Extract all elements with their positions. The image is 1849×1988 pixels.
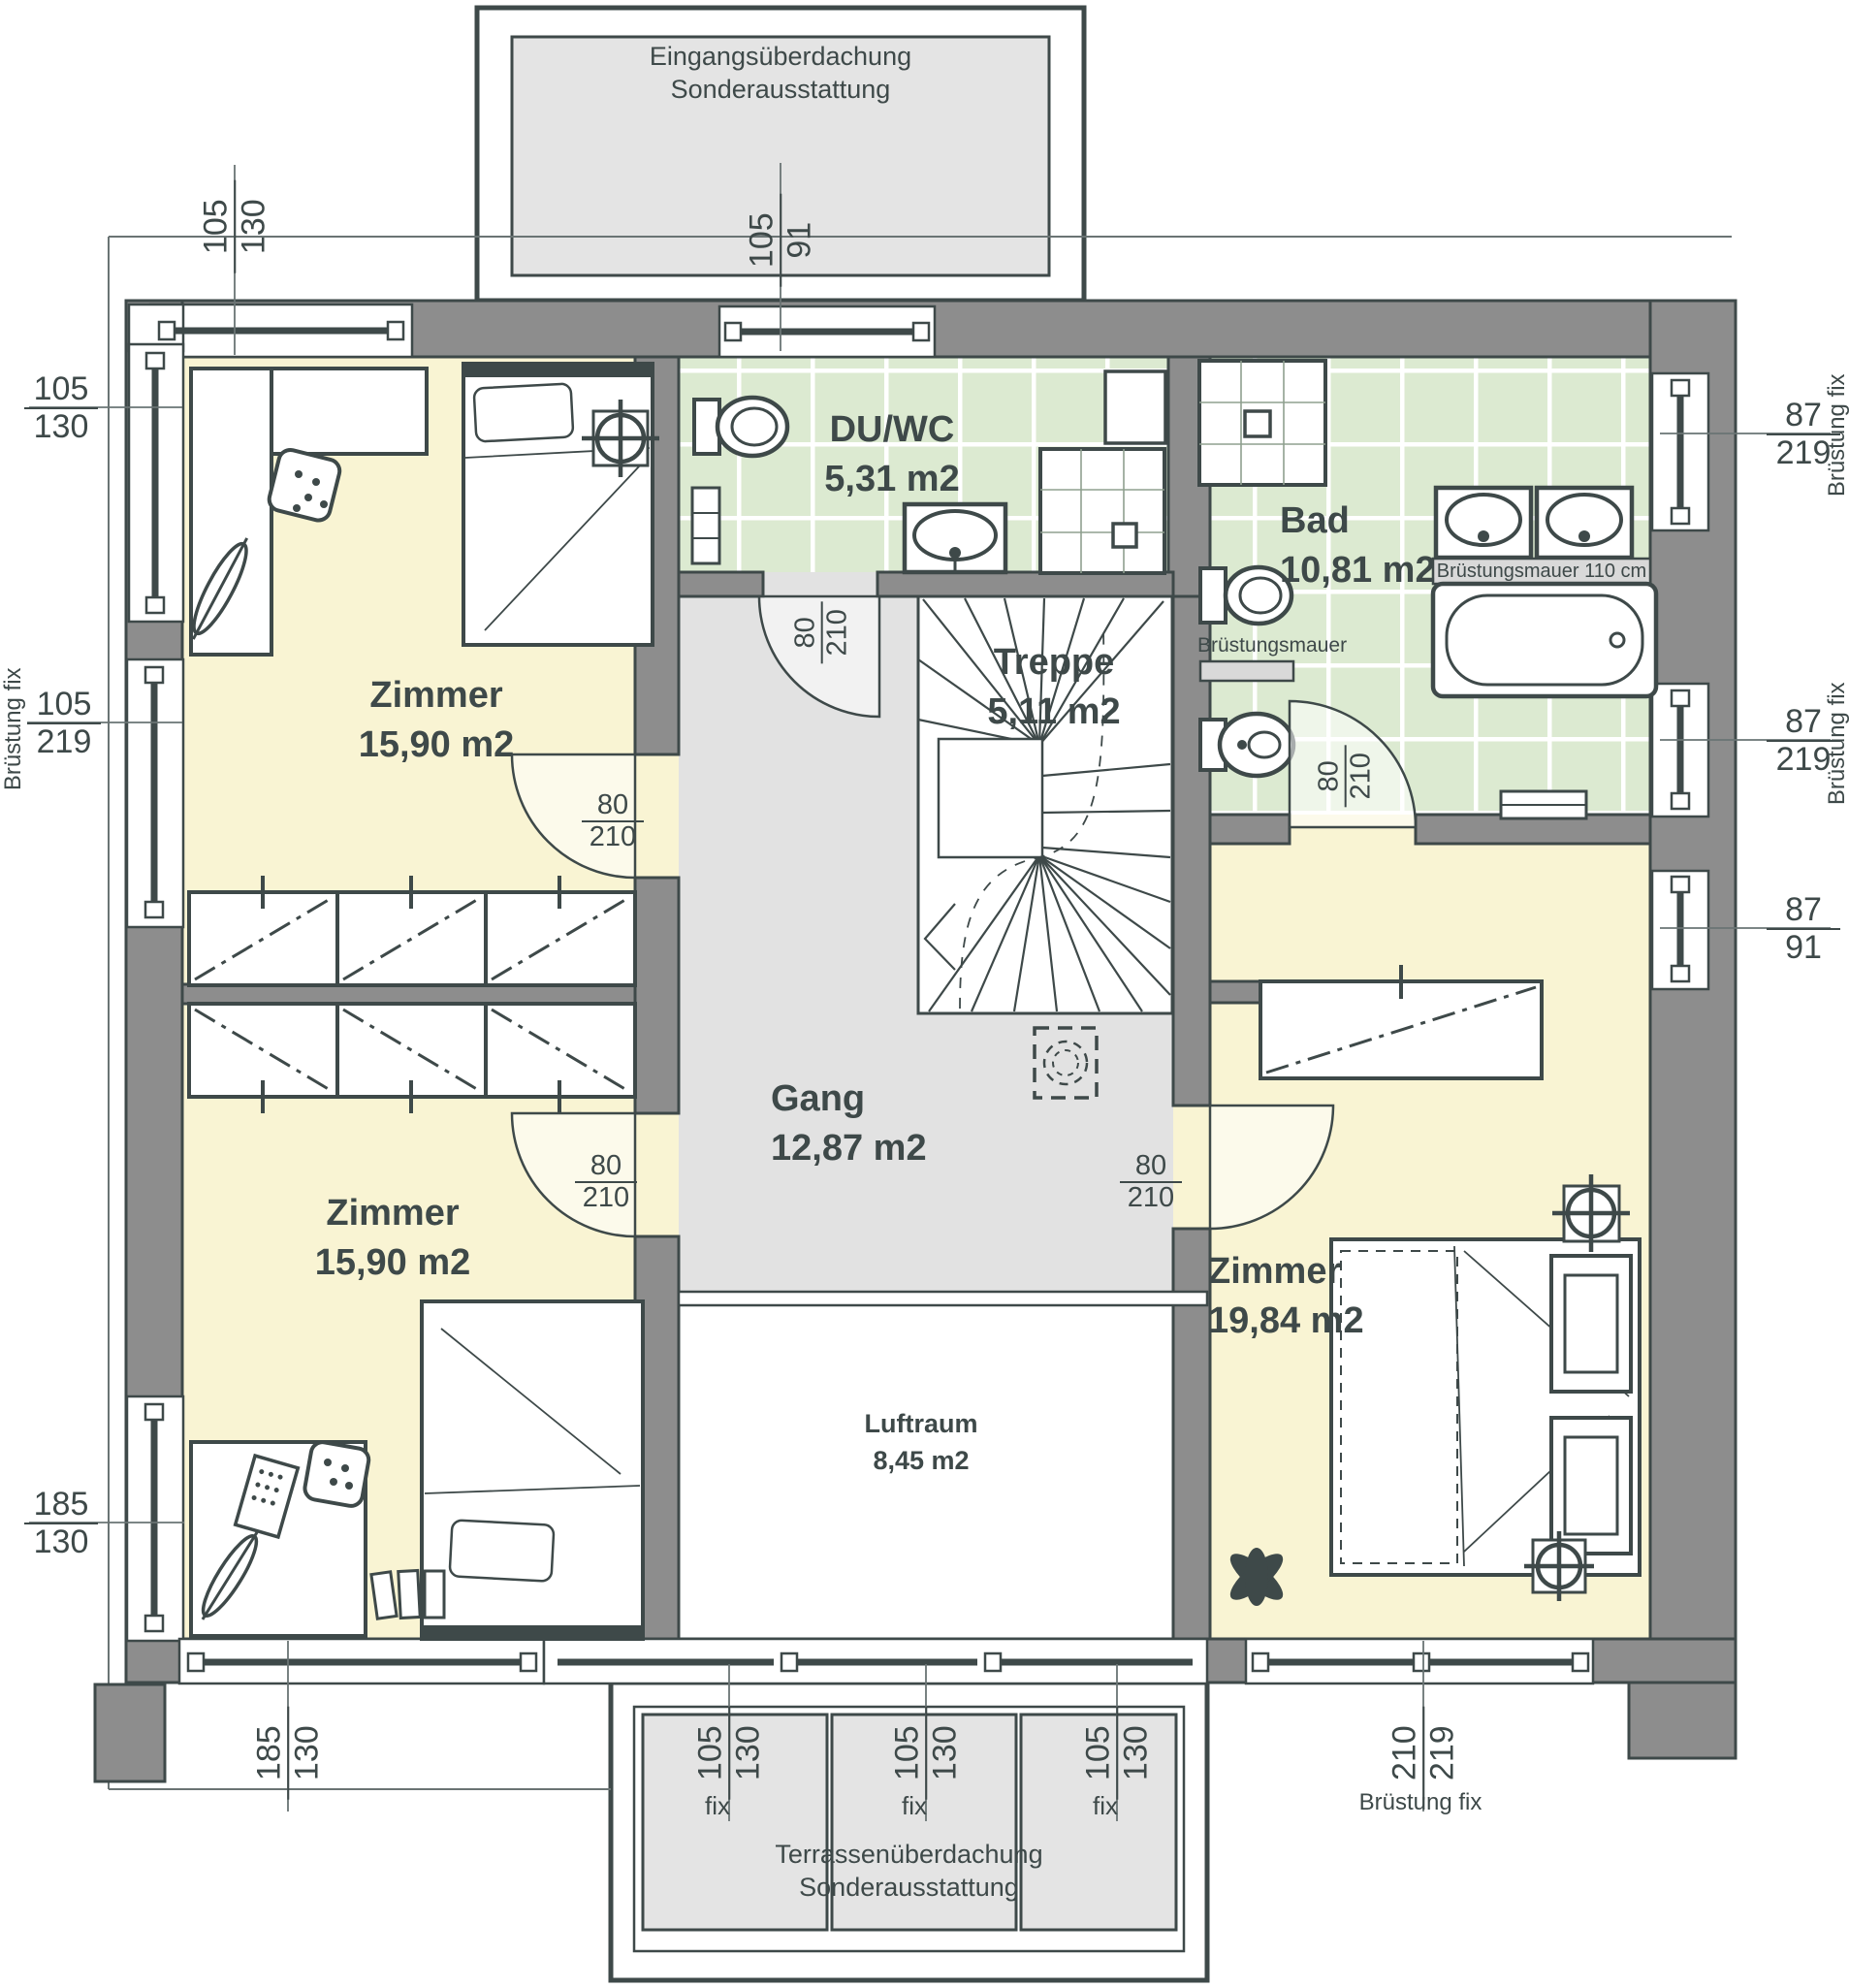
note-bruestung-fix-bottom: Brüstung fix	[1338, 1789, 1503, 1816]
dim-corner-top-left: 105 130	[198, 180, 271, 273]
dim-ter race-3: 105 130	[1080, 1707, 1153, 1800]
room-bad-area: 10,81 m2	[1280, 546, 1436, 595]
room-zimmer-bl-name: Zimmer	[276, 1189, 509, 1238]
room-bad: Bad 10,81 m2	[1280, 497, 1436, 596]
room-treppe-area: 5,11 m2	[938, 688, 1170, 737]
terrace-canopy-line1: Terrassenüberdachung	[611, 1839, 1207, 1872]
dim-left-parapet: 105 219	[27, 687, 101, 759]
room-luftraum-name: Luftraum	[805, 1406, 1037, 1443]
room-zimmer-tl-name: Zimmer	[320, 671, 553, 721]
dim-left-upper: 105 130	[24, 371, 98, 444]
room-luftraum: Luftraum 8,45 m2	[805, 1406, 1037, 1480]
note-fix-3: fix	[1067, 1792, 1144, 1821]
note-parapet-110: Brüstungsmauer 110 cm	[1433, 561, 1650, 583]
dim-right-zimmer: 87 91	[1767, 892, 1840, 965]
room-treppe: Treppe 5,11 m2	[938, 638, 1170, 738]
dim-entrance-window: 105 91	[744, 194, 816, 287]
room-treppe-name: Treppe	[938, 638, 1170, 688]
entrance-canopy-line2: Sonderausstattung	[477, 74, 1084, 107]
room-gang-area: 12,87 m2	[771, 1124, 927, 1173]
dim-door-duwc: 80 210	[791, 601, 854, 663]
terrace-canopy-line2: Sonderausstattung	[611, 1872, 1207, 1905]
note-bruestung-fix-right2: Brüstung fix	[1824, 671, 1849, 817]
dim-terrace-1: 105 130	[692, 1707, 765, 1800]
dim-terrace-2: 105 130	[889, 1707, 962, 1800]
dim-door-bad: 80 210	[1315, 745, 1378, 807]
room-zimmer-tl: Zimmer 15,90 m2	[320, 671, 553, 771]
room-gang: Gang 12,87 m2	[771, 1074, 927, 1174]
dim-door-zimmer-r: 80 210	[1120, 1151, 1182, 1214]
note-bruestung-fix-right1: Brüstung fix	[1824, 363, 1849, 508]
floor-plan: Eingangsüberdachung Sonderausstattung 10…	[0, 0, 1849, 1988]
room-zimmer-r-area: 19,84 m2	[1208, 1297, 1364, 1346]
note-fix-2: fix	[876, 1792, 953, 1821]
terrace-canopy-label: Terrassenüberdachung Sonderausstattung	[611, 1839, 1207, 1905]
entrance-canopy-label: Eingangsüberdachung Sonderausstattung	[477, 41, 1084, 107]
room-gang-name: Gang	[771, 1074, 927, 1124]
room-zimmer-tl-area: 15,90 m2	[320, 721, 553, 770]
room-bad-name: Bad	[1280, 497, 1436, 546]
dim-corner-bottom-left: 185 130	[251, 1707, 324, 1800]
entrance-canopy-line1: Eingangsüberdachung	[477, 41, 1084, 74]
dim-bottom-right: 210 219	[1387, 1707, 1459, 1800]
room-zimmer-bl: Zimmer 15,90 m2	[276, 1189, 509, 1289]
dim-door-zimmer-bl: 80 210	[575, 1151, 637, 1214]
room-duwc-area: 5,31 m2	[766, 455, 1018, 504]
room-zimmer-r-name: Zimmer	[1208, 1247, 1364, 1297]
room-luftraum-area: 8,45 m2	[805, 1443, 1037, 1480]
room-duwc: DU/WC 5,31 m2	[766, 405, 1018, 505]
plan-drawing	[0, 0, 1849, 1988]
room-zimmer-r: Zimmer 19,84 m2	[1208, 1247, 1364, 1347]
dim-door-zimmer-tl: 80 210	[582, 790, 644, 853]
room-zimmer-bl-area: 15,90 m2	[276, 1238, 509, 1288]
room-duwc-name: DU/WC	[766, 405, 1018, 455]
note-parapet: Brüstungsmauer	[1197, 634, 1347, 657]
note-bruestung-fix-left: Brüstung fix	[0, 657, 27, 802]
note-fix-1: fix	[679, 1792, 756, 1821]
dim-left-lower: 185 130	[24, 1487, 98, 1559]
